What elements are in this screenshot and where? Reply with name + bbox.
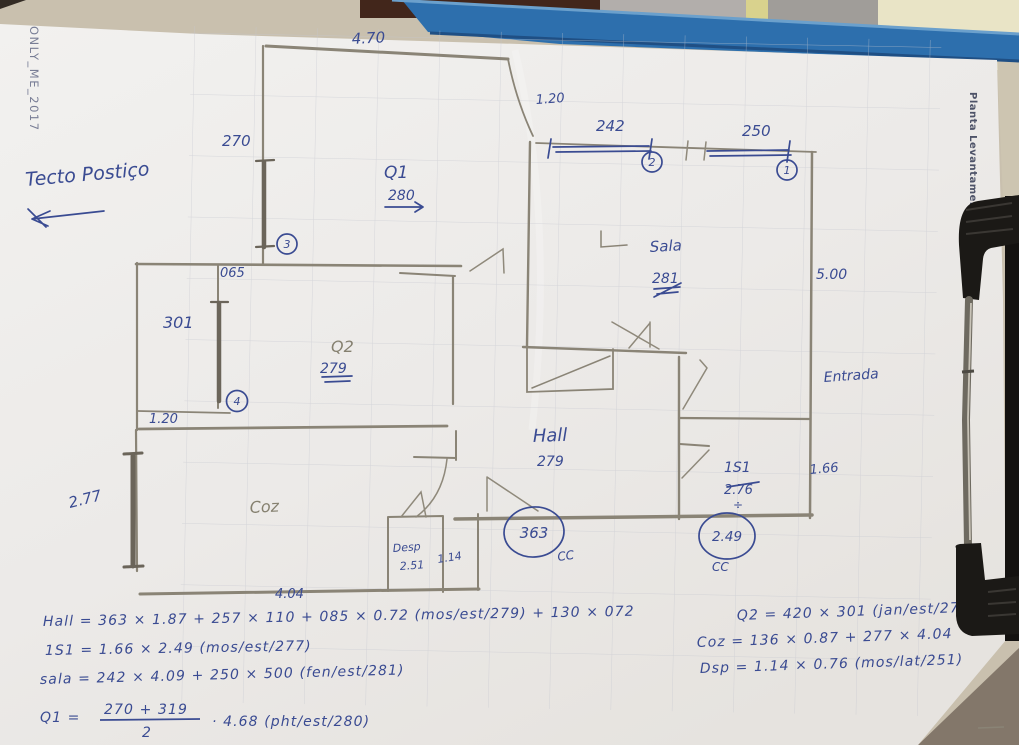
label-is1-div: ÷ [733,498,743,512]
formula-q1-rhs: · 4.68 (pht/est/280) [212,714,370,730]
label-top-width: 4.70 [351,28,385,48]
label-window3-len: 270 [222,132,251,150]
label-coz-width: 4.04 [275,587,304,602]
label-corridor-width: 1.66 [809,461,839,478]
label-hall-width: 363 [520,524,549,542]
label-window4-num: 4 [234,395,241,408]
label-window1-len: 250 [742,122,771,140]
label-coz-name: Coz [249,496,280,517]
label-window3-num: 3 [284,238,291,251]
formula-q1-denominator: 2 [142,725,152,741]
label-window4-len: 301 [163,313,194,332]
label-is1-depth: 2.76 [724,483,753,498]
label-hall-name: Hall [532,425,567,447]
label-door-left: 1.20 [149,412,178,427]
label-is1-width: 2.49 [712,529,742,545]
label-is1-cc: CC [712,560,729,574]
clip-edge-strip [1005,196,1019,641]
label-desp-name: Desp [392,540,421,555]
label-sala-depth: 281 [652,271,679,287]
label-is1-name: 1S1 [724,460,751,476]
label-hall-cc: CC [556,548,575,564]
watermark: ONLY_ME_2017 [27,26,41,132]
label-window2-len: 242 [596,117,625,135]
label-window2-num: 2 [649,156,656,169]
label-gap-065: 065 [220,266,245,281]
label-hall-depth: 279 [537,454,564,470]
formula-q1-fraction-bar [100,719,200,720]
label-right-height: 5.00 [816,267,847,283]
pencil-dash [978,727,1004,728]
label-q2-depth: 279 [320,361,347,377]
label-window1-num: 1 [784,164,791,177]
label-q1-name: Q1 [384,163,408,183]
formula-q1-numerator: 270 + 319 [104,702,188,718]
label-q2-name: Q2 [331,337,354,356]
formula-q1-lhs: Q1 = [40,710,81,726]
photo-floorplan-clipboard: ONLY_ME_2017 Planta Levantamento Tecto P… [0,0,1019,745]
label-q1-depth: 280 [388,188,415,204]
clip-rod-joint [962,371,974,372]
label-desp-depth: 2.51 [399,558,424,573]
label-sala-name: Sala [649,236,682,256]
label-door-top: 1.20 [535,91,565,108]
